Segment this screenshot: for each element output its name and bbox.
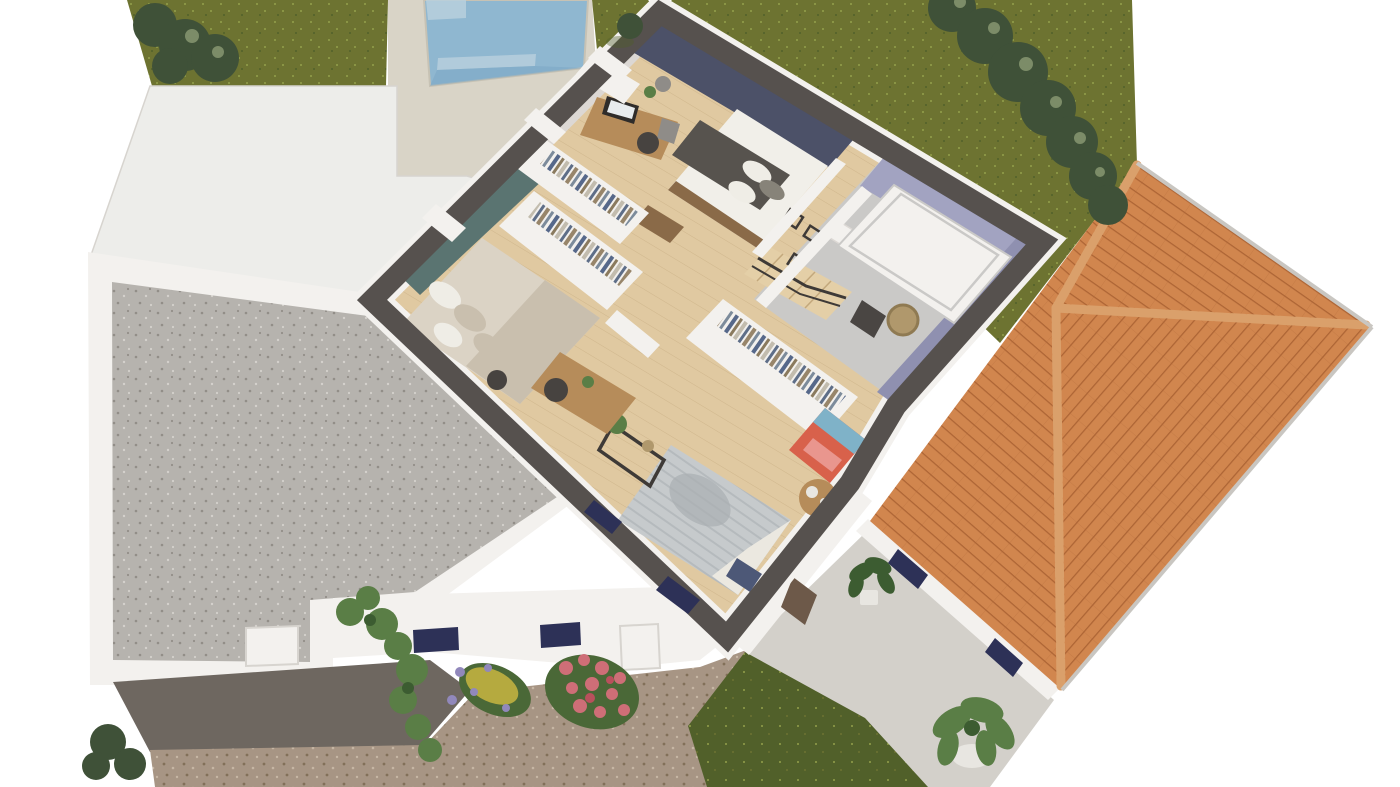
rose [614, 672, 626, 684]
vine-shade [402, 682, 414, 694]
desk-plant [582, 376, 594, 388]
rose [566, 682, 578, 694]
vine-blob [405, 714, 431, 740]
leaf [964, 720, 980, 736]
flower [502, 704, 510, 712]
rose [585, 693, 595, 703]
leaf-speck [1074, 132, 1086, 144]
bush [191, 34, 239, 82]
vine-blob [396, 654, 428, 686]
leaf-speck [212, 46, 224, 58]
carport-window [246, 626, 298, 666]
rose [559, 661, 573, 675]
laundry-basket [888, 305, 918, 335]
entry-door [620, 624, 660, 670]
bush [82, 752, 110, 780]
tree [617, 13, 643, 39]
leaf-speck [988, 22, 1000, 34]
tree [1088, 185, 1128, 225]
leaf-speck [1095, 167, 1105, 177]
table-dish [806, 486, 818, 498]
stool [487, 370, 507, 390]
bush [114, 748, 146, 780]
rose [573, 699, 587, 713]
floorplan-render [0, 0, 1400, 787]
desk-chair [544, 378, 568, 402]
leaf-speck [1050, 96, 1062, 108]
pool-step-corner [426, 0, 466, 20]
scene-svg [0, 0, 1400, 787]
flower [484, 664, 492, 672]
flower [455, 667, 465, 677]
bush [152, 48, 188, 84]
desk-chair [637, 132, 659, 154]
rose [594, 706, 606, 718]
flower [470, 688, 478, 696]
facade-window-shutter [540, 622, 581, 648]
desk-plant [644, 86, 656, 98]
rose [595, 661, 609, 675]
rose [606, 688, 618, 700]
shelf-basket [642, 440, 654, 452]
rose [585, 677, 599, 691]
vine-blob [356, 586, 380, 610]
leaf-speck [185, 29, 199, 43]
pendant-lamp [655, 76, 671, 92]
facade-window-shutter [413, 627, 459, 653]
flower [447, 695, 457, 705]
rose [606, 676, 614, 684]
plant-pot [860, 590, 878, 605]
vine-blob [418, 738, 442, 762]
vine-shade [364, 614, 376, 626]
rose [578, 654, 590, 666]
leaf-speck [1019, 57, 1033, 71]
roof-hip-ridge [1056, 308, 1061, 686]
rose [618, 704, 630, 716]
